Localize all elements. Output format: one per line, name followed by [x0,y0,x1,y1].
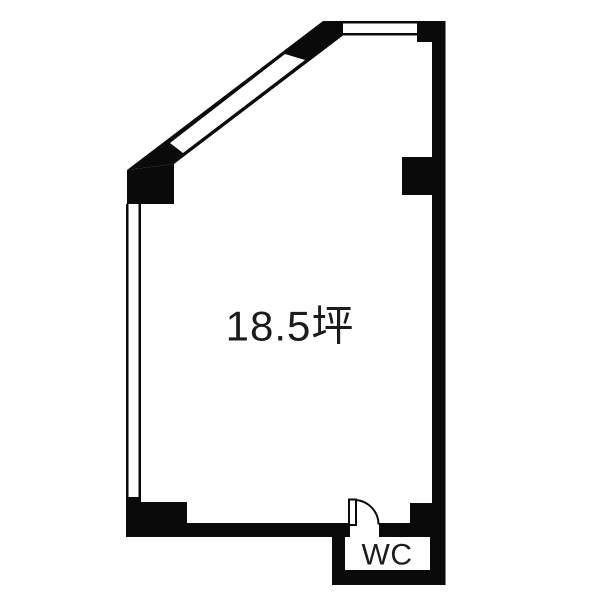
window-left-icon [129,204,139,497]
window-top-icon [343,24,417,34]
wall-right [432,21,446,585]
wall-corner-bottom-left [126,502,187,537]
wc-label: WC [362,539,413,572]
door-leaf [349,500,356,526]
door-arc [354,500,379,525]
floorplan-canvas: 18.5坪 WC [0,0,600,600]
windows [129,24,431,571]
wall-diagonal-corner-block [127,164,174,204]
door-swing-icon [349,500,379,526]
wall-corner-bottom-right [410,503,445,537]
area-label: 18.5坪 [226,303,355,350]
window-diagonal-icon [170,54,305,153]
pillar-right [402,157,445,195]
wall-bottom-right-segment [379,523,410,537]
wall-bottom-left-segment [187,523,350,537]
